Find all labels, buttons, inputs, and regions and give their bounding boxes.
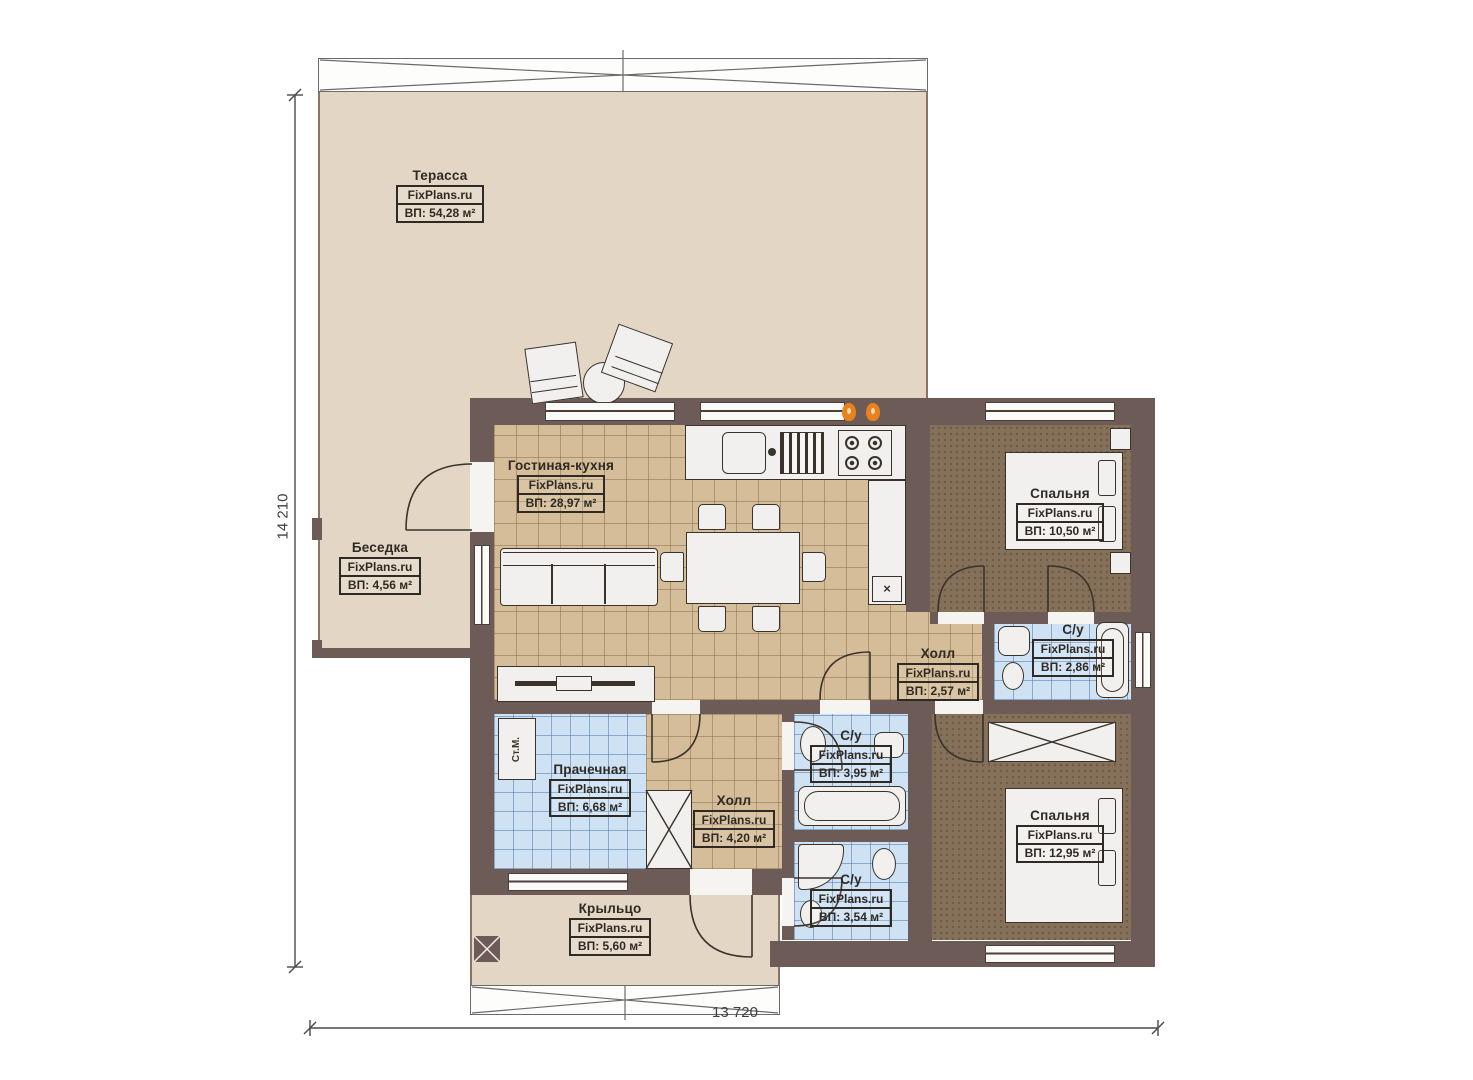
room-name: Спальня	[1008, 808, 1112, 823]
door-gap-bath-low	[782, 878, 794, 926]
room-label-porch: Крыльцо FixPlans.ru ВП: 5,60 м²	[560, 901, 660, 956]
room-label-laundry: Прачечная FixPlans.ru ВП: 6,68 м²	[538, 762, 642, 817]
bath-mid-tub-inner	[804, 791, 900, 821]
dining-chair-bottom-2	[752, 606, 780, 632]
dimension-width-label: 13 720	[690, 1004, 780, 1021]
room-info-box: FixPlans.ru ВП: 4,56 м²	[339, 557, 422, 595]
tv-base	[556, 676, 592, 691]
room-label-terrace: Терасса FixPlans.ru ВП: 54,28 м²	[388, 168, 492, 223]
room-brand: FixPlans.ru	[1018, 505, 1103, 521]
window-kitchen-top	[700, 402, 845, 421]
room-area: ВП: 6,68 м²	[551, 797, 630, 815]
dim-tick-bottom	[289, 961, 301, 973]
stove-burner-3	[845, 456, 859, 470]
wall-living-bedroom	[906, 398, 930, 612]
room-name: Терасса	[388, 168, 492, 183]
room-area: ВП: 12,95 м²	[1018, 843, 1103, 861]
room-info-box: FixPlans.ru ВП: 4,20 м²	[693, 810, 776, 848]
door-gap-bedroom-bottom	[935, 700, 983, 714]
room-info-box: FixPlans.ru ВП: 3,54 м²	[810, 889, 893, 927]
room-info-box: FixPlans.ru ВП: 10,50 м²	[1016, 503, 1105, 541]
room-info-box: FixPlans.ru ВП: 2,86 м²	[1032, 639, 1115, 677]
door-gap-laundry	[652, 700, 700, 714]
room-label-bathroom-low: С/у FixPlans.ru ВП: 3,54 м²	[806, 872, 896, 927]
room-brand: FixPlans.ru	[551, 781, 630, 797]
room-area: ВП: 4,56 м²	[341, 575, 420, 593]
dining-table	[686, 532, 800, 604]
washing-machine-label: Ст.М.	[511, 736, 522, 761]
dishwasher-unit: ×	[872, 576, 902, 602]
room-label-hall-top: Холл FixPlans.ru ВП: 2,57 м²	[890, 646, 986, 701]
room-brand: FixPlans.ru	[519, 477, 604, 493]
window-laundry-bottom	[508, 873, 628, 891]
porch-column	[474, 936, 500, 962]
washing-machine: Ст.М.	[498, 718, 536, 780]
dim-tick-top	[289, 89, 301, 101]
stove-burner-1	[845, 436, 859, 450]
kitchen-faucet	[768, 448, 776, 456]
dim-tick-right	[1152, 1022, 1164, 1034]
dining-chair-right	[802, 552, 826, 582]
room-label-hall-bottom: Холл FixPlans.ru ВП: 4,20 м²	[686, 793, 782, 848]
room-area: ВП: 2,86 м²	[1034, 657, 1113, 675]
dining-chair-left	[660, 552, 684, 582]
bath-top-toilet	[1002, 662, 1024, 690]
room-label-living-kitchen: Гостиная-кухня FixPlans.ru ВП: 28,97 м²	[502, 458, 620, 513]
room-brand: FixPlans.ru	[1034, 641, 1113, 657]
room-name: Холл	[890, 646, 986, 661]
room-brand: FixPlans.ru	[341, 559, 420, 575]
window-bedroom-top	[985, 402, 1115, 421]
room-name: Холл	[686, 793, 782, 808]
room-name: С/у	[1028, 622, 1118, 637]
door-gap-terrace	[470, 462, 494, 532]
terrace-edge-strip	[318, 58, 928, 92]
gazebo-wall-stub-bottom	[312, 640, 322, 658]
gazebo-wall-stub-top	[312, 518, 322, 540]
room-area: ВП: 5,60 м²	[571, 936, 650, 954]
room-brand: FixPlans.ru	[1018, 827, 1103, 843]
room-info-box: FixPlans.ru ВП: 54,28 м²	[396, 185, 485, 223]
flame-icon-2	[866, 403, 880, 421]
terrace-lounge-chair-left	[524, 342, 583, 405]
flame-icon-1	[842, 403, 856, 421]
door-gap-hall2	[820, 700, 870, 714]
room-brand: FixPlans.ru	[812, 747, 891, 763]
room-brand: FixPlans.ru	[812, 891, 891, 907]
window-living-left	[474, 545, 490, 625]
room-info-box: FixPlans.ru ВП: 3,95 м²	[810, 745, 893, 783]
nightstand-top-1	[1110, 428, 1131, 450]
door-gap-porch-entry	[690, 869, 752, 895]
sofa-divider-1	[551, 564, 553, 604]
stove-burner-2	[868, 436, 882, 450]
dimension-height-label: 14 210	[275, 472, 292, 562]
room-area: ВП: 4,20 м²	[695, 828, 774, 846]
wall-mid-horizontal	[494, 700, 1131, 714]
kitchen-drainboard	[780, 432, 824, 474]
room-info-box: FixPlans.ru ВП: 6,68 м²	[549, 779, 632, 817]
room-brand: FixPlans.ru	[695, 812, 774, 828]
floor-plan-canvas: × Ст.М.	[0, 0, 1473, 1080]
door-gap-bedroom-top	[938, 612, 984, 624]
room-area: ВП: 3,95 м²	[812, 763, 891, 781]
sofa-back	[503, 552, 655, 566]
room-area: ВП: 10,50 м²	[1018, 521, 1103, 539]
kitchen-sink	[722, 432, 766, 474]
wall-bath-divider	[794, 830, 908, 842]
room-area: ВП: 54,28 м²	[398, 203, 483, 221]
room-name: Беседка	[330, 540, 430, 555]
window-living-top	[545, 402, 675, 421]
gazebo-floor	[318, 402, 472, 648]
window-bath-top-right	[1135, 632, 1151, 688]
room-area: ВП: 3,54 м²	[812, 907, 891, 925]
room-name: Гостиная-кухня	[502, 458, 620, 473]
room-label-bedroom-top: Спальня FixPlans.ru ВП: 10,50 м²	[1010, 486, 1110, 541]
wall-baths-bedroom	[908, 714, 932, 941]
kitchen-stove	[838, 430, 892, 476]
room-area: ВП: 28,97 м²	[519, 493, 604, 511]
bath-top-sink	[998, 626, 1030, 656]
room-name: Крыльцо	[560, 901, 660, 916]
door-gap-bath-mid	[782, 722, 794, 770]
dining-chair-top-2	[752, 504, 780, 530]
room-area: ВП: 2,57 м²	[899, 681, 978, 699]
nightstand-top-2	[1110, 552, 1131, 574]
room-info-box: FixPlans.ru ВП: 2,57 м²	[897, 663, 980, 701]
room-label-bathroom-mid: С/у FixPlans.ru ВП: 3,95 м²	[806, 728, 896, 783]
room-name: Прачечная	[538, 762, 642, 777]
window-bedroom-bottom	[985, 945, 1115, 963]
room-name: С/у	[806, 872, 896, 887]
room-brand: FixPlans.ru	[571, 920, 650, 936]
room-brand: FixPlans.ru	[899, 665, 978, 681]
sofa-divider-2	[604, 564, 606, 604]
room-label-bedroom-bottom: Спальня FixPlans.ru ВП: 12,95 м²	[1008, 808, 1112, 863]
room-info-box: FixPlans.ru ВП: 28,97 м²	[517, 475, 606, 513]
room-name: С/у	[806, 728, 896, 743]
room-info-box: FixPlans.ru ВП: 5,60 м²	[569, 918, 652, 956]
room-label-bathroom-top: С/у FixPlans.ru ВП: 2,86 м²	[1028, 622, 1118, 677]
dining-chair-top-1	[698, 504, 726, 530]
room-info-box: FixPlans.ru ВП: 12,95 м²	[1016, 825, 1105, 863]
stove-burner-4	[868, 456, 882, 470]
dim-tick-left	[304, 1022, 316, 1034]
room-label-gazebo: Беседка FixPlans.ru ВП: 4,56 м²	[330, 540, 430, 595]
room-name: Спальня	[1010, 486, 1110, 501]
gazebo-south-wall	[318, 648, 472, 658]
wardrobe	[988, 722, 1116, 762]
room-brand: FixPlans.ru	[398, 187, 483, 203]
dining-chair-bottom-1	[698, 606, 726, 632]
